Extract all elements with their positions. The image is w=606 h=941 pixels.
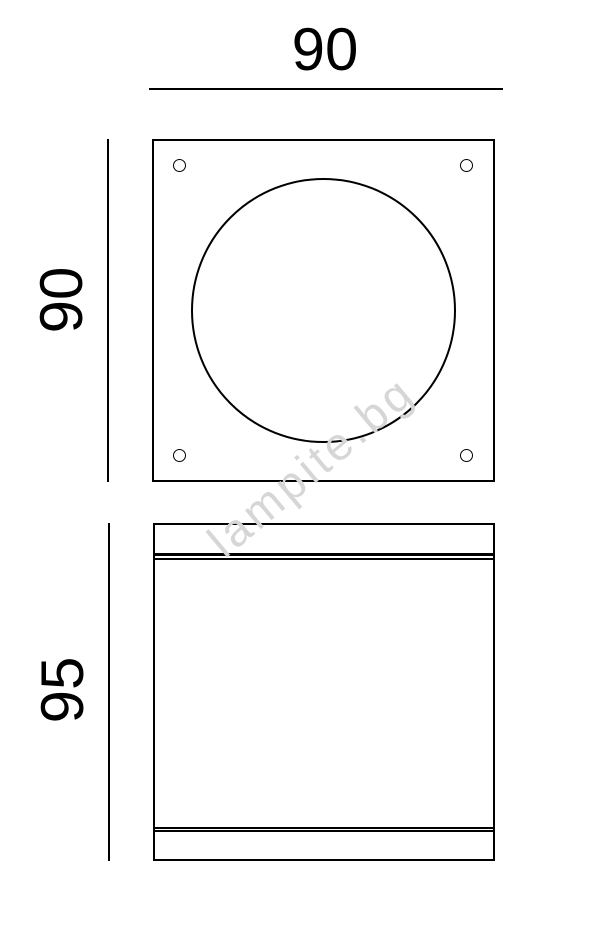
screw-hole-bottom-left: [173, 449, 186, 462]
front-view-bottom-flange-line-outer: [155, 830, 493, 832]
front-view-height-dimension-label: 95: [33, 657, 93, 724]
top-view-height-dimension-line: [107, 139, 109, 482]
drawing-canvas: 90 90 95 lampite.bg: [0, 0, 606, 941]
front-view-bottom-flange-line-inner: [155, 827, 493, 830]
front-view-top-flange-line-outer: [155, 553, 493, 556]
front-view-top-flange-line-inner: [155, 558, 493, 560]
top-view-width-dimension-line: [149, 88, 503, 91]
top-view-width-dimension-label: 90: [292, 20, 359, 80]
screw-hole-bottom-right: [460, 449, 473, 462]
front-view-body-outline: [153, 523, 496, 861]
top-view-height-dimension-label: 90: [32, 267, 92, 334]
screw-hole-top-right: [460, 159, 473, 172]
screw-hole-top-left: [173, 159, 186, 172]
front-view-height-dimension-line: [108, 523, 110, 862]
